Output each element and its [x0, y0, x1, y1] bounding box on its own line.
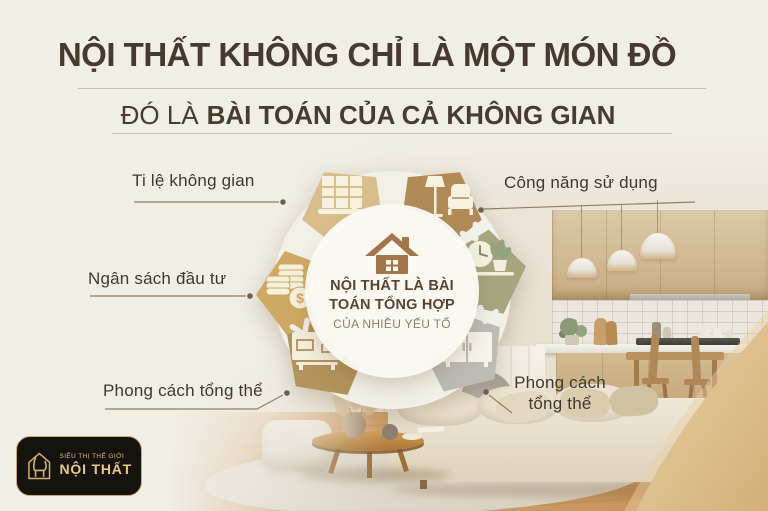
leader-lines [0, 0, 768, 511]
brand-logo: SIÊU THỊ THẾ GIỚI NỘI THẤT [16, 436, 142, 496]
label-function: Công năng sử dụng [504, 172, 658, 193]
infographic-poster: NỘI THẤT KHÔNG CHỈ LÀ MỘT MÓN ĐỒ ĐÓ LÀBÀ… [0, 0, 768, 511]
logo-name: NỘI THẤT [59, 461, 132, 479]
logo-text: SIÊU THỊ THẾ GIỚI NỘI THẤT [59, 453, 132, 479]
label-style-right: Phong cách tổng thể [508, 372, 612, 414]
chair-house-icon [26, 447, 52, 485]
label-budget: Ngân sách đầu tư [88, 268, 226, 289]
label-style-left: Phong cách tổng thể [103, 380, 263, 401]
label-space-ratio: Ti lệ không gian [132, 170, 255, 191]
